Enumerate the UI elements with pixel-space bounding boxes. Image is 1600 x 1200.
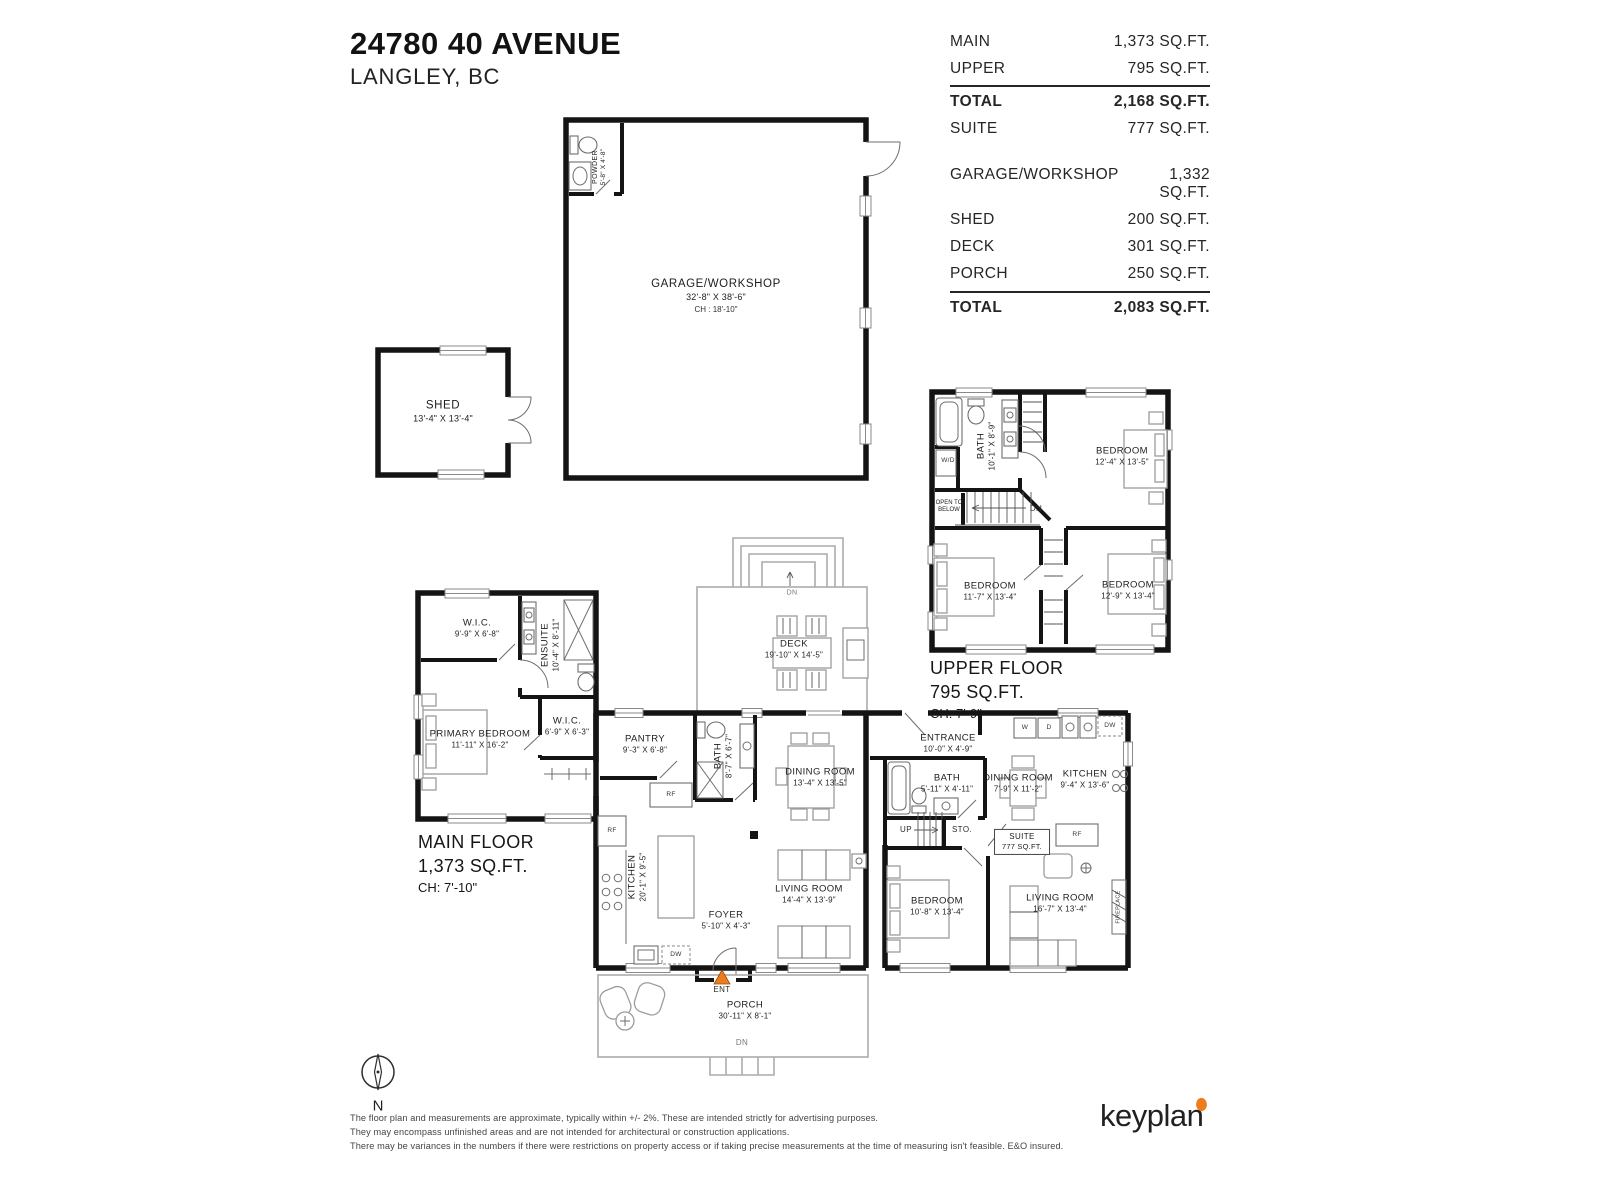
disclaimer-line: They may encompass unfinished areas and … xyxy=(350,1127,789,1137)
fireplace-label: FIREPLACE xyxy=(1115,890,1122,923)
stairs-down-label: DN xyxy=(1030,504,1042,514)
primary-bedroom-label: PRIMARY BEDROOM 11'-11" X 16'-2" xyxy=(430,729,531,752)
suite-dining-label: DINING ROOM 7'-9" X 11'-2" xyxy=(983,773,1053,796)
stairs-up-label: UP xyxy=(900,825,912,835)
dishwasher-label: DW xyxy=(670,951,681,959)
table-row: PORCH250 SQ.FT. xyxy=(950,261,1210,288)
fridge-label: RF xyxy=(607,827,616,835)
table-total-row: TOTAL2,083 SQ.FT. xyxy=(950,291,1210,322)
fridge-label: RF xyxy=(1072,831,1081,839)
porch-plan xyxy=(597,970,868,1075)
porch-label: PORCH 30'-11" X 8'-1" xyxy=(719,1000,772,1023)
compass-north-label: N xyxy=(373,1098,384,1115)
disclaimer-line: There may be variances in the numbers if… xyxy=(350,1141,1063,1151)
disclaimer-line: The floor plan and measurements are appr… xyxy=(350,1113,878,1123)
garage-room-label: GARAGE/WORKSHOP 32'-8" X 38'-6" CH : 18'… xyxy=(651,277,781,315)
wic1-label: W.I.C. 9'-9" X 6'-8" xyxy=(455,618,499,641)
main-bath-label: BATH 8'-7" X 6'-7" xyxy=(713,734,736,778)
deck-plan xyxy=(697,538,868,713)
washer-label: W xyxy=(1022,724,1028,732)
ensuite-label: ENSUITE 10'-4" X 8'-11" xyxy=(540,619,563,672)
dryer-label: D xyxy=(1047,724,1052,732)
washer-dryer-label: W/D xyxy=(941,457,955,465)
upper-bedroom2-label: BEDROOM 11'-7" X 13'-4" xyxy=(964,581,1017,604)
shed-room-label: SHED 13'-4" X 13'-4" xyxy=(413,399,473,426)
entry-label: ENT xyxy=(713,985,730,995)
dishwasher-label: DW xyxy=(1104,722,1115,730)
table-row: MAIN1,373 SQ.FT. xyxy=(950,28,1210,55)
table-row: SUITE777 SQ.FT. xyxy=(950,116,1210,143)
area-table: MAIN1,373 SQ.FT. UPPER795 SQ.FT. TOTAL2,… xyxy=(950,28,1210,321)
main-kitchen-label: KITCHEN 20'-1" X 9'-5" xyxy=(627,853,650,902)
suite-area-badge: SUITE 777 SQ.FT. xyxy=(994,829,1050,855)
suite-entrance-label: ENTRANCE 10'-0" X 4'-9" xyxy=(920,733,975,756)
main-dining-label: DINING ROOM 13'-4" X 13'-5" xyxy=(785,767,855,790)
upper-bedroom3-label: BEDROOM 12'-9" X 13'-4" xyxy=(1101,580,1155,603)
open-to-below-label: OPEN TO BELOW xyxy=(930,500,968,514)
upper-floor-title: UPPER FLOOR 795 SQ.FT. CH: 7'-9" xyxy=(930,658,1063,721)
page-subtitle: LANGLEY, BC xyxy=(350,64,500,90)
main-left-wing-plan xyxy=(414,589,601,823)
fridge-label: RF xyxy=(666,791,675,799)
wic2-label: W.I.C. 6'-9" X 6'-3" xyxy=(545,716,589,739)
table-row: DECK301 SQ.FT. xyxy=(950,234,1210,261)
deck-stairs-down-label: DN xyxy=(787,588,798,597)
table-row: GARAGE/WORKSHOP1,332 SQ.FT. xyxy=(950,162,1210,207)
main-living-label: LIVING ROOM 14'-4" X 13'-9" xyxy=(775,884,843,907)
compass-icon xyxy=(362,1054,394,1090)
suite-bedroom-label: BEDROOM 10'-8" X 13'-4" xyxy=(910,896,964,919)
deck-label: DECK 19'-10" X 14'-5" xyxy=(765,639,823,662)
table-row: UPPER795 SQ.FT. xyxy=(950,55,1210,82)
table-row: SHED200 SQ.FT. xyxy=(950,207,1210,234)
foyer-label: FOYER 5'-10" X 4'-3" xyxy=(702,910,751,933)
upper-bath-label: BATH 10'-1" X 8'-9" xyxy=(976,422,999,471)
storage-label: STO. xyxy=(952,825,972,835)
main-floor-title: MAIN FLOOR 1,373 SQ.FT. CH: 7'-10" xyxy=(418,832,534,895)
floor-plan-drawing xyxy=(0,0,1600,1200)
suite-kitchen-label: KITCHEN 9'-4" X 13'-6" xyxy=(1061,769,1110,792)
suite-living-label: LIVING ROOM 16'-7" X 13'-4" xyxy=(1026,893,1094,916)
keyplan-logo: keyplan xyxy=(1100,1098,1203,1134)
upper-floor-plan xyxy=(928,388,1172,654)
entry-marker-icon xyxy=(714,970,730,984)
pantry-label: PANTRY 9'-3" X 6'-8" xyxy=(623,734,667,757)
table-total-row: TOTAL2,168 SQ.FT. xyxy=(950,85,1210,116)
porch-stairs-down-label: DN xyxy=(736,1038,748,1048)
powder-room-label: POWDER 5'-8" X 4'-8" xyxy=(591,149,609,185)
upper-bedroom1-label: BEDROOM 12'-4" X 13'-5" xyxy=(1095,446,1149,469)
floor-plan-sheet: 24780 40 AVENUE LANGLEY, BC MAIN1,373 SQ… xyxy=(0,0,1600,1200)
page-title: 24780 40 AVENUE xyxy=(350,26,621,62)
suite-bath-label: BATH 5'-11" X 4'-11" xyxy=(921,773,973,796)
